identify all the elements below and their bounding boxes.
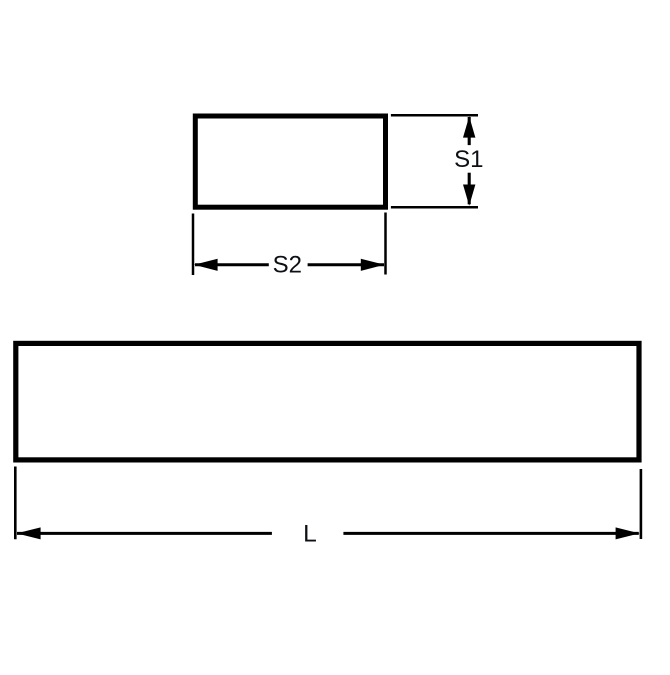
svg-text:S1: S1 xyxy=(454,146,483,173)
svg-text:S2: S2 xyxy=(273,252,302,279)
svg-text:L: L xyxy=(303,520,317,547)
